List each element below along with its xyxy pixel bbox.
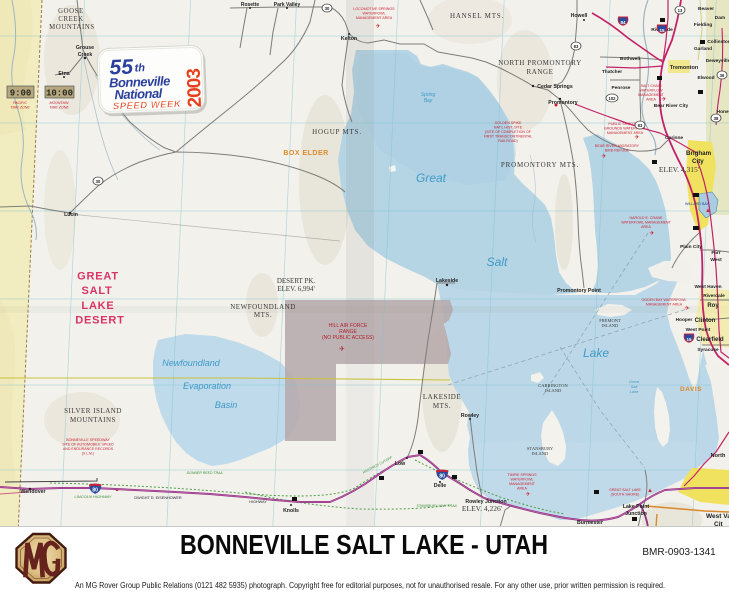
svg-text:WATERFOWL: WATERFOWL	[363, 12, 386, 16]
svg-text:th: th	[134, 62, 145, 74]
svg-text:SILVER ISLAND: SILVER ISLAND	[64, 407, 122, 415]
svg-text:13: 13	[678, 8, 683, 13]
svg-text:Wendover: Wendover	[21, 489, 46, 495]
svg-text:WATERFLOW: WATERFLOW	[640, 89, 664, 93]
svg-text:102: 102	[609, 96, 617, 101]
svg-text:BOX ELDER: BOX ELDER	[283, 150, 328, 157]
svg-text:West Point: West Point	[686, 327, 711, 333]
svg-text:Dam: Dam	[715, 15, 725, 21]
svg-text:Thatcher: Thatcher	[602, 69, 622, 75]
svg-text:Lake: Lake	[583, 346, 609, 360]
svg-text:Lake Point: Lake Point	[623, 504, 650, 510]
svg-text:(9 L.M.): (9 L.M.)	[82, 452, 94, 456]
svg-text:AND ENDURANCE RECORDS: AND ENDURANCE RECORDS	[63, 447, 114, 451]
svg-text:CREEK: CREEK	[58, 16, 83, 23]
svg-text:Junction: Junction	[625, 511, 647, 517]
svg-text:Cedar Springs: Cedar Springs	[537, 84, 573, 90]
svg-text:BONNEVILLE SPEEDWAY: BONNEVILLE SPEEDWAY	[66, 438, 110, 442]
svg-text:Grouse: Grouse	[76, 45, 94, 51]
svg-text:AREA: AREA	[641, 225, 651, 229]
svg-text:FIRST TRANSCONTINENTAL: FIRST TRANSCONTINENTAL	[484, 135, 533, 139]
svg-text:GREAT: GREAT	[77, 271, 119, 283]
svg-text:MANAGEMENT AREA: MANAGEMENT AREA	[356, 16, 393, 20]
svg-text:Garland: Garland	[694, 46, 712, 52]
svg-text:✈: ✈	[661, 96, 666, 103]
svg-text:OGDEN BAY WATERFOWL: OGDEN BAY WATERFOWL	[642, 298, 687, 302]
svg-text:✈: ✈	[525, 491, 530, 498]
svg-text:✈: ✈	[339, 346, 345, 353]
svg-text:SITE OF AUTOMOBILE SPEED: SITE OF AUTOMOBILE SPEED	[62, 443, 114, 447]
svg-text:Syracuse: Syracuse	[697, 347, 719, 353]
svg-text:Farr: Farr	[711, 250, 720, 256]
svg-text:Low: Low	[395, 461, 406, 467]
svg-text:AREA: AREA	[517, 487, 527, 491]
svg-text:MOUNTAINS: MOUNTAINS	[49, 24, 95, 31]
svg-text:Kelton: Kelton	[341, 36, 357, 42]
svg-text:GOOSE: GOOSE	[58, 8, 84, 15]
svg-text:Lake: Lake	[630, 389, 639, 394]
svg-text:WATERFOWL: WATERFOWL	[511, 478, 534, 482]
svg-text:LINCOLN HIGHWAY: LINCOLN HIGHWAY	[74, 494, 112, 499]
svg-text:84: 84	[620, 20, 626, 25]
svg-text:▲: ▲	[647, 488, 653, 494]
svg-text:ELEV. 6,994': ELEV. 6,994'	[277, 285, 315, 293]
svg-text:West Va: West Va	[706, 513, 729, 520]
svg-text:DAVIS: DAVIS	[680, 386, 702, 393]
svg-text:Salt: Salt	[487, 255, 508, 269]
svg-text:Knolls: Knolls	[283, 508, 299, 514]
svg-text:LOCOMOTIVE SPRINGS: LOCOMOTIVE SPRINGS	[353, 7, 395, 11]
svg-text:Great: Great	[416, 171, 447, 185]
svg-text:Bear River City: Bear River City	[654, 103, 689, 109]
svg-text:LAKE: LAKE	[81, 300, 114, 312]
svg-text:An MG Rover Group Public Relat: An MG Rover Group Public Relations (0121…	[75, 581, 665, 590]
svg-text:✈: ✈	[684, 305, 689, 312]
svg-text:✈: ✈	[375, 23, 380, 30]
svg-text:Fielding: Fielding	[694, 22, 712, 28]
svg-text:TIME ZONE: TIME ZONE	[49, 106, 69, 110]
svg-text:10:00: 10:00	[46, 89, 73, 99]
svg-text:STANSBURY HWY TRAIL: STANSBURY HWY TRAIL	[417, 504, 458, 508]
svg-text:9:00: 9:00	[10, 89, 32, 99]
svg-text:Promontory Point: Promontory Point	[557, 288, 601, 294]
svg-text:MOUNTAINS: MOUNTAINS	[70, 416, 116, 424]
svg-text:Hooper: Hooper	[676, 317, 693, 323]
svg-text:Penrose: Penrose	[612, 85, 631, 91]
svg-text:15: 15	[686, 337, 692, 342]
svg-text:PROMONTORY MTS.: PROMONTORY MTS.	[501, 161, 579, 169]
svg-text:36: 36	[720, 73, 725, 78]
svg-text:RAILROAD): RAILROAD)	[498, 139, 518, 143]
svg-text:Bay: Bay	[424, 98, 433, 104]
svg-text:DESERT PK.: DESERT PK.	[277, 277, 316, 285]
svg-text:HANSEL MTS.: HANSEL MTS.	[450, 12, 504, 20]
svg-text:MANAGEMENT: MANAGEMENT	[509, 482, 536, 486]
svg-text:83: 83	[638, 123, 643, 128]
svg-text:HAROLD E. CRANE: HAROLD E. CRANE	[630, 216, 664, 220]
svg-text:SALT: SALT	[81, 285, 112, 297]
svg-text:Riverdale: Riverdale	[703, 293, 725, 299]
svg-text:Clinton: Clinton	[695, 318, 716, 324]
svg-text:MANAGEMENT AREA: MANAGEMENT AREA	[646, 303, 683, 307]
svg-text:MTS.: MTS.	[254, 311, 272, 319]
svg-text:Brigham: Brigham	[686, 150, 712, 157]
svg-text:HIGHWAY: HIGHWAY	[249, 500, 267, 504]
svg-text:30: 30	[96, 179, 101, 184]
svg-text:TIME ZONE: TIME ZONE	[10, 106, 30, 110]
svg-text:City: City	[692, 158, 704, 165]
svg-text:MOUNTAIN: MOUNTAIN	[50, 101, 69, 105]
svg-text:Collinston: Collinston	[707, 39, 729, 45]
svg-text:BONNEVILLE SALT LAKE - UTAH: BONNEVILLE SALT LAKE - UTAH	[180, 529, 548, 560]
svg-text:LAKESIDE: LAKESIDE	[423, 393, 461, 401]
svg-text:Howell: Howell	[571, 13, 588, 19]
svg-text:HOGUP MTS.: HOGUP MTS.	[312, 128, 362, 136]
svg-text:83: 83	[574, 44, 579, 49]
svg-text:BIRD REFUGE: BIRD REFUGE	[605, 149, 630, 153]
svg-text:(SOUTH SHORE): (SOUTH SHORE)	[611, 493, 640, 497]
svg-text:WATERFOWL MANAGEMENT: WATERFOWL MANAGEMENT	[621, 221, 671, 225]
svg-text:NORTH PROMONTORY: NORTH PROMONTORY	[498, 59, 582, 67]
svg-text:West Haven: West Haven	[694, 284, 721, 290]
svg-text:Basin: Basin	[215, 400, 238, 410]
svg-text:DESERT: DESERT	[75, 315, 124, 327]
svg-text:West: West	[710, 257, 722, 263]
svg-text:✈: ✈	[649, 230, 654, 237]
svg-text:Lakeside: Lakeside	[436, 278, 458, 284]
svg-text:ISLAND: ISLAND	[602, 323, 619, 328]
svg-text:PACIFIC: PACIFIC	[13, 101, 27, 105]
svg-text:BEAR RIVER MIGRATORY: BEAR RIVER MIGRATORY	[595, 144, 640, 148]
svg-text:AREA: AREA	[646, 98, 656, 102]
svg-text:Bothwell: Bothwell	[620, 56, 640, 62]
svg-text:2003: 2003	[184, 68, 206, 107]
svg-text:North: North	[711, 453, 726, 459]
svg-text:MTS.: MTS.	[433, 402, 451, 410]
svg-text:▲: ▲	[705, 208, 711, 214]
svg-text:(SITE OF COMPLETION OF: (SITE OF COMPLETION OF	[485, 130, 532, 134]
svg-text:Elwood: Elwood	[697, 75, 714, 81]
svg-text:TIMPIE SPRINGS: TIMPIE SPRINGS	[507, 473, 537, 477]
svg-text:RANGE: RANGE	[526, 68, 553, 76]
svg-text:NEWFOUNDLAND: NEWFOUNDLAND	[230, 303, 296, 311]
svg-text:Corinne: Corinne	[665, 135, 683, 141]
svg-text:30: 30	[325, 6, 330, 11]
svg-text:Evaporation: Evaporation	[183, 381, 231, 391]
svg-text:Deweyville: Deweyville	[706, 58, 729, 64]
svg-text:ELEV. 4,315': ELEV. 4,315'	[659, 165, 700, 174]
svg-text:ISLAND: ISLAND	[545, 388, 562, 393]
svg-text:ISLAND: ISLAND	[532, 451, 549, 456]
svg-text:80: 80	[92, 488, 98, 494]
svg-text:Beaver: Beaver	[698, 6, 714, 12]
svg-text:38: 38	[714, 116, 719, 121]
svg-text:✈: ✈	[601, 153, 606, 160]
svg-text:GREAT SALT LAKE: GREAT SALT LAKE	[609, 488, 641, 492]
svg-text:Newfoundland: Newfoundland	[162, 358, 221, 368]
svg-text:WILLARD BAY: WILLARD BAY	[685, 202, 710, 206]
svg-text:DWIGHT D. EISENHOWER: DWIGHT D. EISENHOWER	[134, 496, 181, 500]
svg-text:(NO PUBLIC ACCESS): (NO PUBLIC ACCESS)	[322, 335, 374, 341]
svg-text:15: 15	[659, 28, 665, 33]
svg-text:SALT CHAIN: SALT CHAIN	[641, 84, 662, 88]
svg-text:80: 80	[439, 474, 445, 480]
svg-text:Promontory: Promontory	[548, 100, 578, 106]
svg-text:DONNER REED TRAIL: DONNER REED TRAIL	[187, 471, 224, 475]
svg-text:ELEV. 4,226': ELEV. 4,226'	[462, 504, 503, 513]
svg-text:Burmester: Burmester	[577, 520, 603, 526]
svg-text:Plain City: Plain City	[680, 244, 702, 250]
svg-text:Rowley Junction: Rowley Junction	[465, 499, 506, 505]
svg-text:BMR-0903-1341: BMR-0903-1341	[642, 547, 716, 558]
svg-text:GOLDEN SPIKE: GOLDEN SPIKE	[495, 121, 522, 125]
svg-text:Roy: Roy	[707, 303, 719, 309]
svg-text:Clearfield: Clearfield	[696, 337, 724, 343]
svg-text:Delle: Delle	[434, 483, 447, 489]
svg-text:NAT'L HIST. SITE: NAT'L HIST. SITE	[494, 126, 523, 130]
svg-text:✈: ✈	[634, 134, 639, 141]
svg-text:Tremonton: Tremonton	[670, 65, 699, 71]
